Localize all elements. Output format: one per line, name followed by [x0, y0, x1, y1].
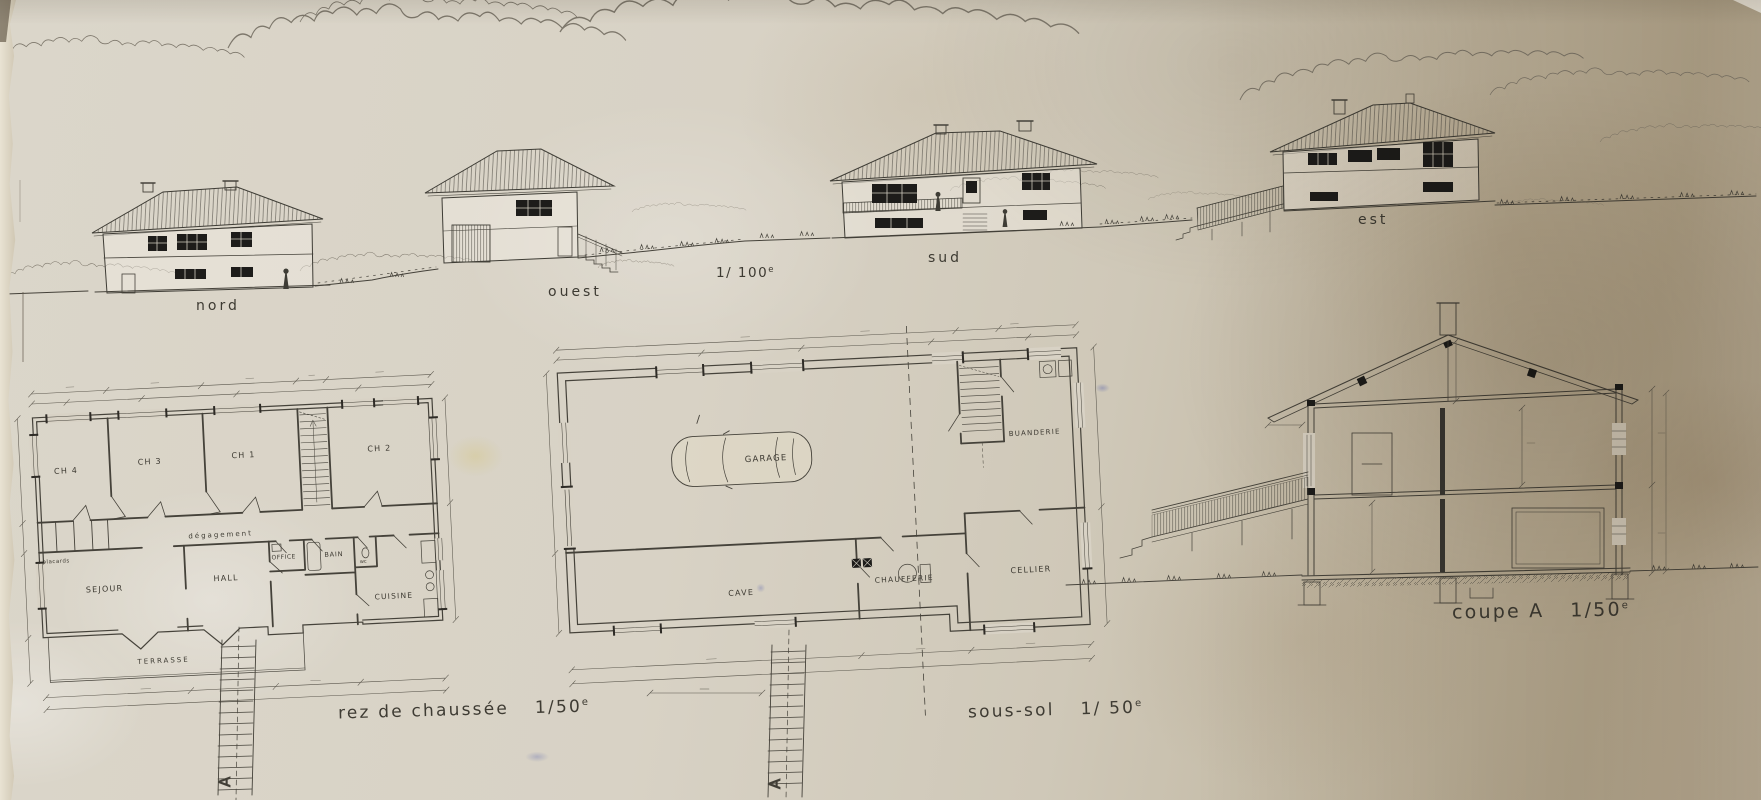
elevation-label-sud: sud: [928, 250, 962, 266]
section-coupe-a: [1052, 283, 1761, 613]
room-label-placards: placards: [42, 558, 70, 565]
elevations-drawing: nord ouest 1/ 100e: [0, 0, 1761, 310]
section-cut-stairs: A A: [0, 615, 1761, 800]
section-cut-stair-right: A: [766, 630, 806, 800]
rez-doors: [71, 482, 409, 620]
room-label-ch1: CH 1: [231, 450, 255, 460]
coupe-dimensions: [1265, 338, 1669, 576]
soussol-walls: [555, 345, 1095, 654]
rez-partitions: [33, 402, 443, 639]
section-marker-a-left: A: [216, 776, 234, 787]
soussol-stair: [959, 364, 1003, 469]
room-label-cellier: CELLIER: [1010, 564, 1051, 575]
paper-crease: [19, 180, 21, 222]
soussol-partitions: [558, 356, 1091, 650]
soussol-doors: [848, 375, 1034, 577]
elevation-ouest: ouest 1/ 100e: [425, 149, 775, 300]
room-label-bain: BAIN: [324, 550, 343, 559]
room-label-cave: CAVE: [728, 588, 754, 598]
paper-crease: [22, 292, 24, 362]
room-label-ch2: CH 2: [367, 443, 391, 453]
room-label-degagement: dégagement: [188, 529, 253, 540]
section-marker-a-right: A: [766, 778, 784, 789]
room-label-wc: wc: [360, 559, 367, 565]
soussol-flues: [852, 558, 872, 568]
room-label-sejour: SEJOUR: [86, 584, 124, 595]
elevation-label-est: est: [1358, 212, 1388, 228]
coupe-terrace-ramp: [1120, 472, 1308, 558]
elevation-est: est: [1176, 94, 1495, 240]
section-cut-stair-left: A: [216, 627, 256, 800]
soussol-room-labels: GARAGE BUANDERIE CAVE CHAUFFERIE CELLIER: [721, 428, 1068, 598]
elevation-nord: nord: [92, 181, 330, 314]
room-label-cuisine: CUISINE: [374, 591, 413, 602]
elevations-scale-label: 1/ 100e: [716, 265, 775, 281]
room-label-office: OFFICE: [271, 553, 296, 561]
blueprint-sheet: nord ouest 1/ 100e: [0, 0, 1761, 800]
caption-coupe-text: coupe A: [1452, 600, 1545, 624]
bottom-dimension: [647, 689, 765, 696]
elevation-sud: sud: [830, 121, 1100, 266]
room-label-ch4: CH 4: [54, 466, 78, 476]
coupe-structure: [1298, 384, 1634, 605]
caption-coupe: coupe A1/50e: [1452, 598, 1630, 623]
room-label-hall: HALL: [213, 573, 239, 583]
elevation-label-ouest: ouest: [548, 284, 602, 300]
room-label-chaufferie: CHAUFFERIE: [875, 573, 934, 585]
room-label-ch3: CH 3: [137, 457, 161, 467]
car-drawing: [670, 410, 813, 492]
elevation-label-nord: nord: [196, 298, 240, 314]
caption-soussol-text: sous-sol: [968, 700, 1055, 722]
room-label-garage: GARAGE: [744, 453, 787, 465]
rez-stair: [299, 411, 330, 506]
